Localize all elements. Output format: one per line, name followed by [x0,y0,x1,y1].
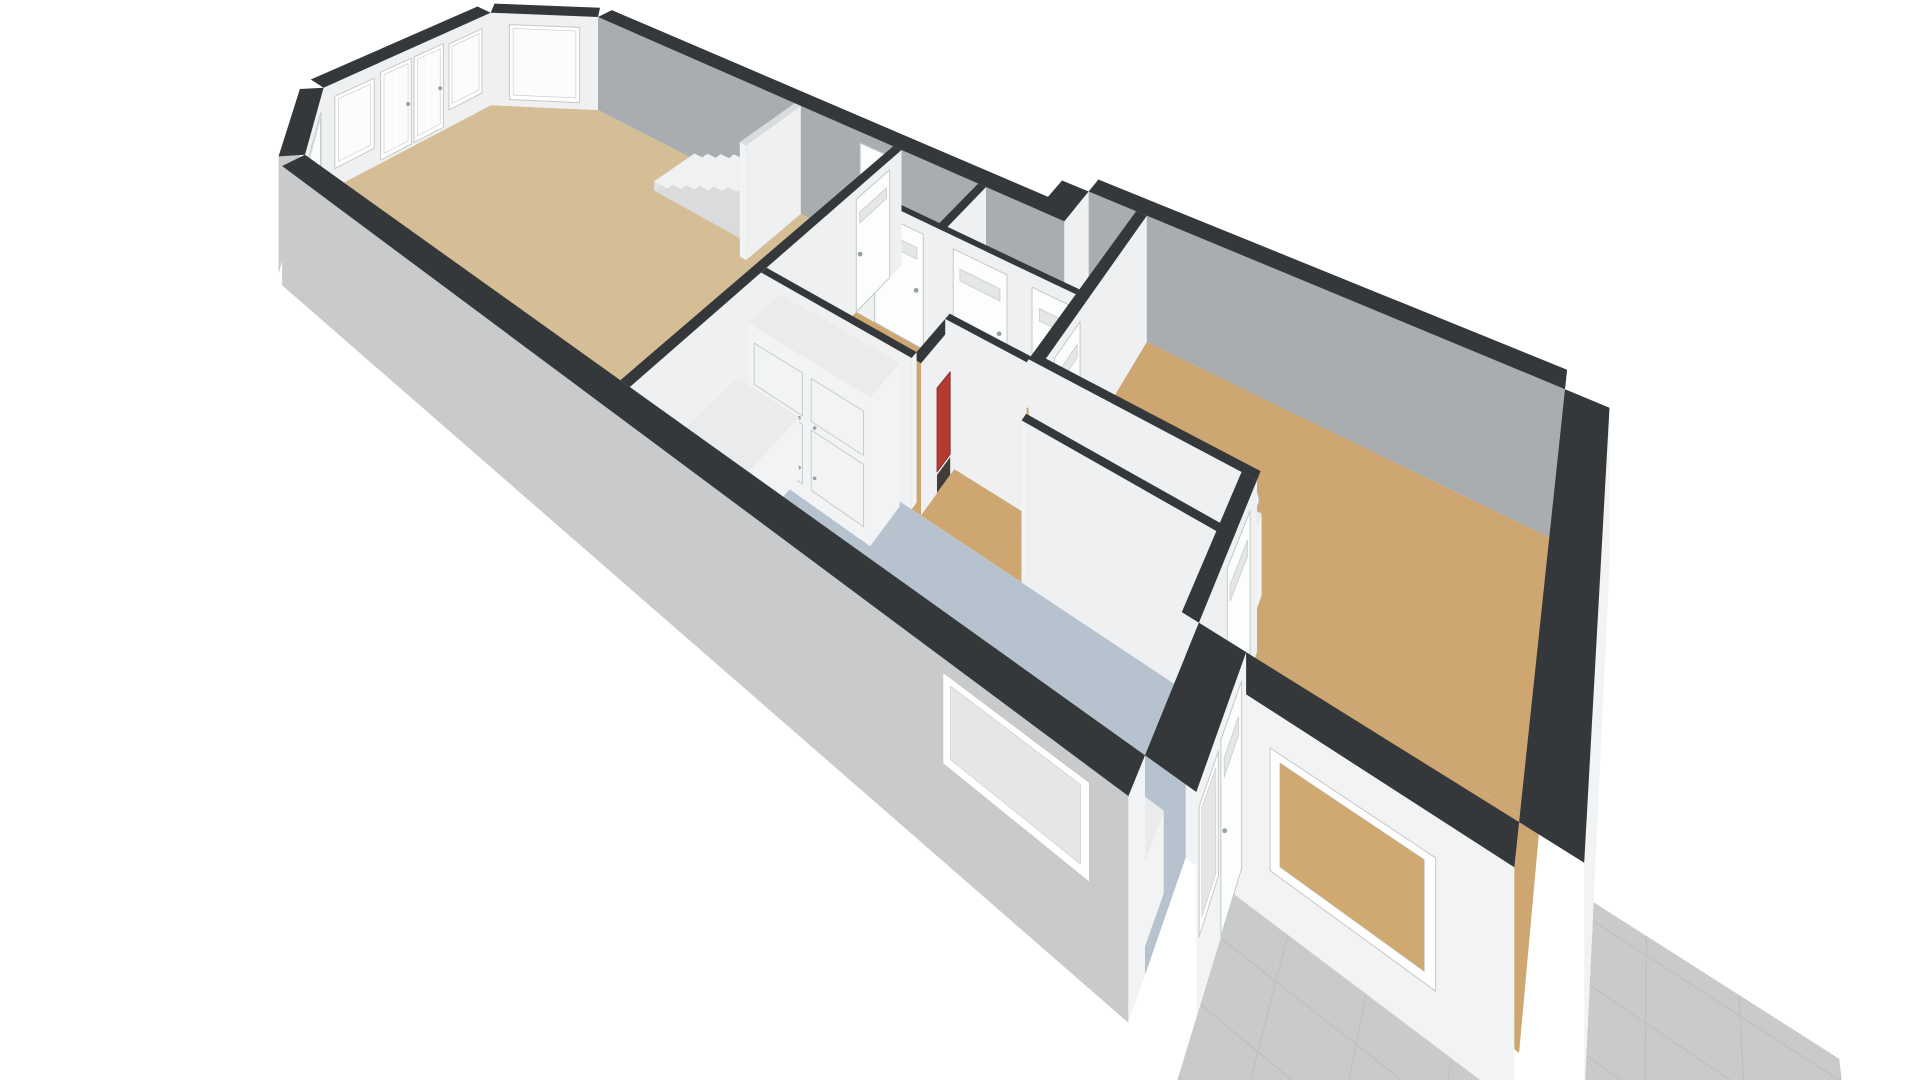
wall-kitchen-hall-b-face [1022,414,1027,583]
door-handle [997,331,1002,336]
wardrobe-knob [813,476,817,480]
wall-kitchen-hall-a-face [912,352,917,509]
floorplan-stage [0,0,1920,1080]
stairs-stub-wall-face [740,142,746,260]
window-handle [406,102,410,106]
door-handle [914,288,919,293]
window-handle [438,86,442,90]
wall-exterior-south-face [1128,755,1145,1023]
wardrobe-knob [813,426,817,430]
door-handle [858,252,863,257]
floorplan-3d-rendering [0,0,1920,1080]
door-handle [1222,828,1227,833]
window-mullion [428,54,430,131]
window-glass [513,28,576,98]
boiler-unit [937,372,950,472]
terrace-tiles [1582,902,1876,1080]
window-mullion [395,69,397,148]
